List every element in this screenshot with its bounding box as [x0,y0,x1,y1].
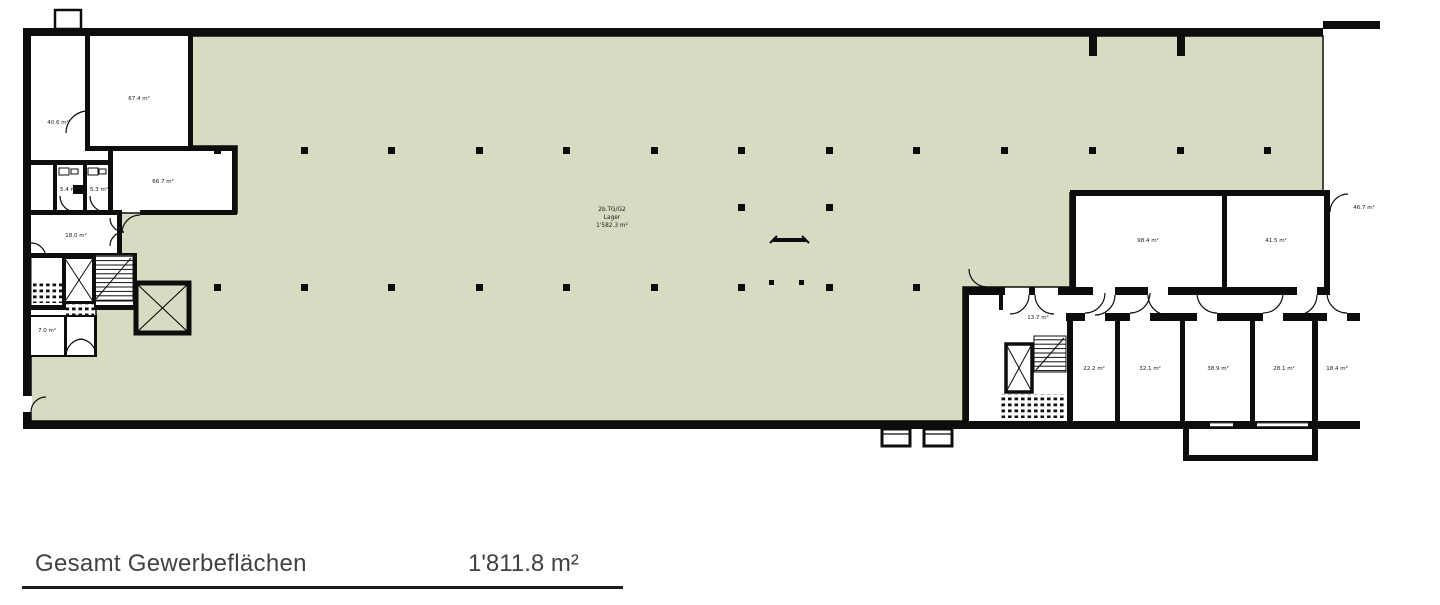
legend: Gesamt Gewerbeflächen 1'811.8 m² [0,546,1440,605]
wc-fixtures [59,168,106,175]
legend-label: Gesamt Gewerbeflächen [35,550,307,578]
left-wall-door-gap [22,396,32,412]
elevator-icon [1006,344,1032,392]
tile-zone [32,283,62,303]
elevator-icon [64,257,94,303]
room-label: 98.4 m² [1137,237,1159,244]
room-label: 41.5 m² [1265,237,1287,244]
room-label: 40.6 m² [47,119,69,126]
room-label: 5.4 m² [60,186,78,193]
room-label: 32.1 m² [1139,365,1161,372]
room-label: 5.3 m² [90,186,108,193]
floorplan-drawing: 40.6 m² 67.4 m² 66.7 m² 5.4 m² 5.3 m² 18… [0,0,1440,500]
room-label: 13.7 m² [1027,314,1049,321]
room-label: 18.4 m² [1326,365,1348,372]
window-strips [1210,423,1308,428]
room-label: 18.0 m² [65,232,87,239]
roof-protrusion [55,10,81,29]
floorplan-canvas: 40.6 m² 67.4 m² 66.7 m² 5.4 m² 5.3 m² 18… [0,0,1440,605]
room-label: 67.4 m² [128,95,150,102]
room-label: 28.1 m² [1273,365,1295,372]
tile-zone [66,304,94,315]
elevator-icon [136,283,189,333]
hall-area [31,36,1323,421]
room-label: 22.2 m² [1083,365,1105,372]
room-label: 66.7 m² [152,178,174,185]
legend-total-area: 1'811.8 m² [468,550,579,578]
room-label: 7.0 m² [38,327,56,334]
room-label: 38.9 m² [1207,365,1229,372]
room-label: 46.7 m² [1353,204,1375,211]
hall-label-name: Lager [604,215,621,221]
entry-boxes [882,429,952,446]
hall-label-area: 1'582.3 m² [596,222,628,229]
tile-zone [1000,394,1066,418]
legend-rule [22,586,623,589]
hall-label-code: 2b.TG/G2 [598,207,626,213]
